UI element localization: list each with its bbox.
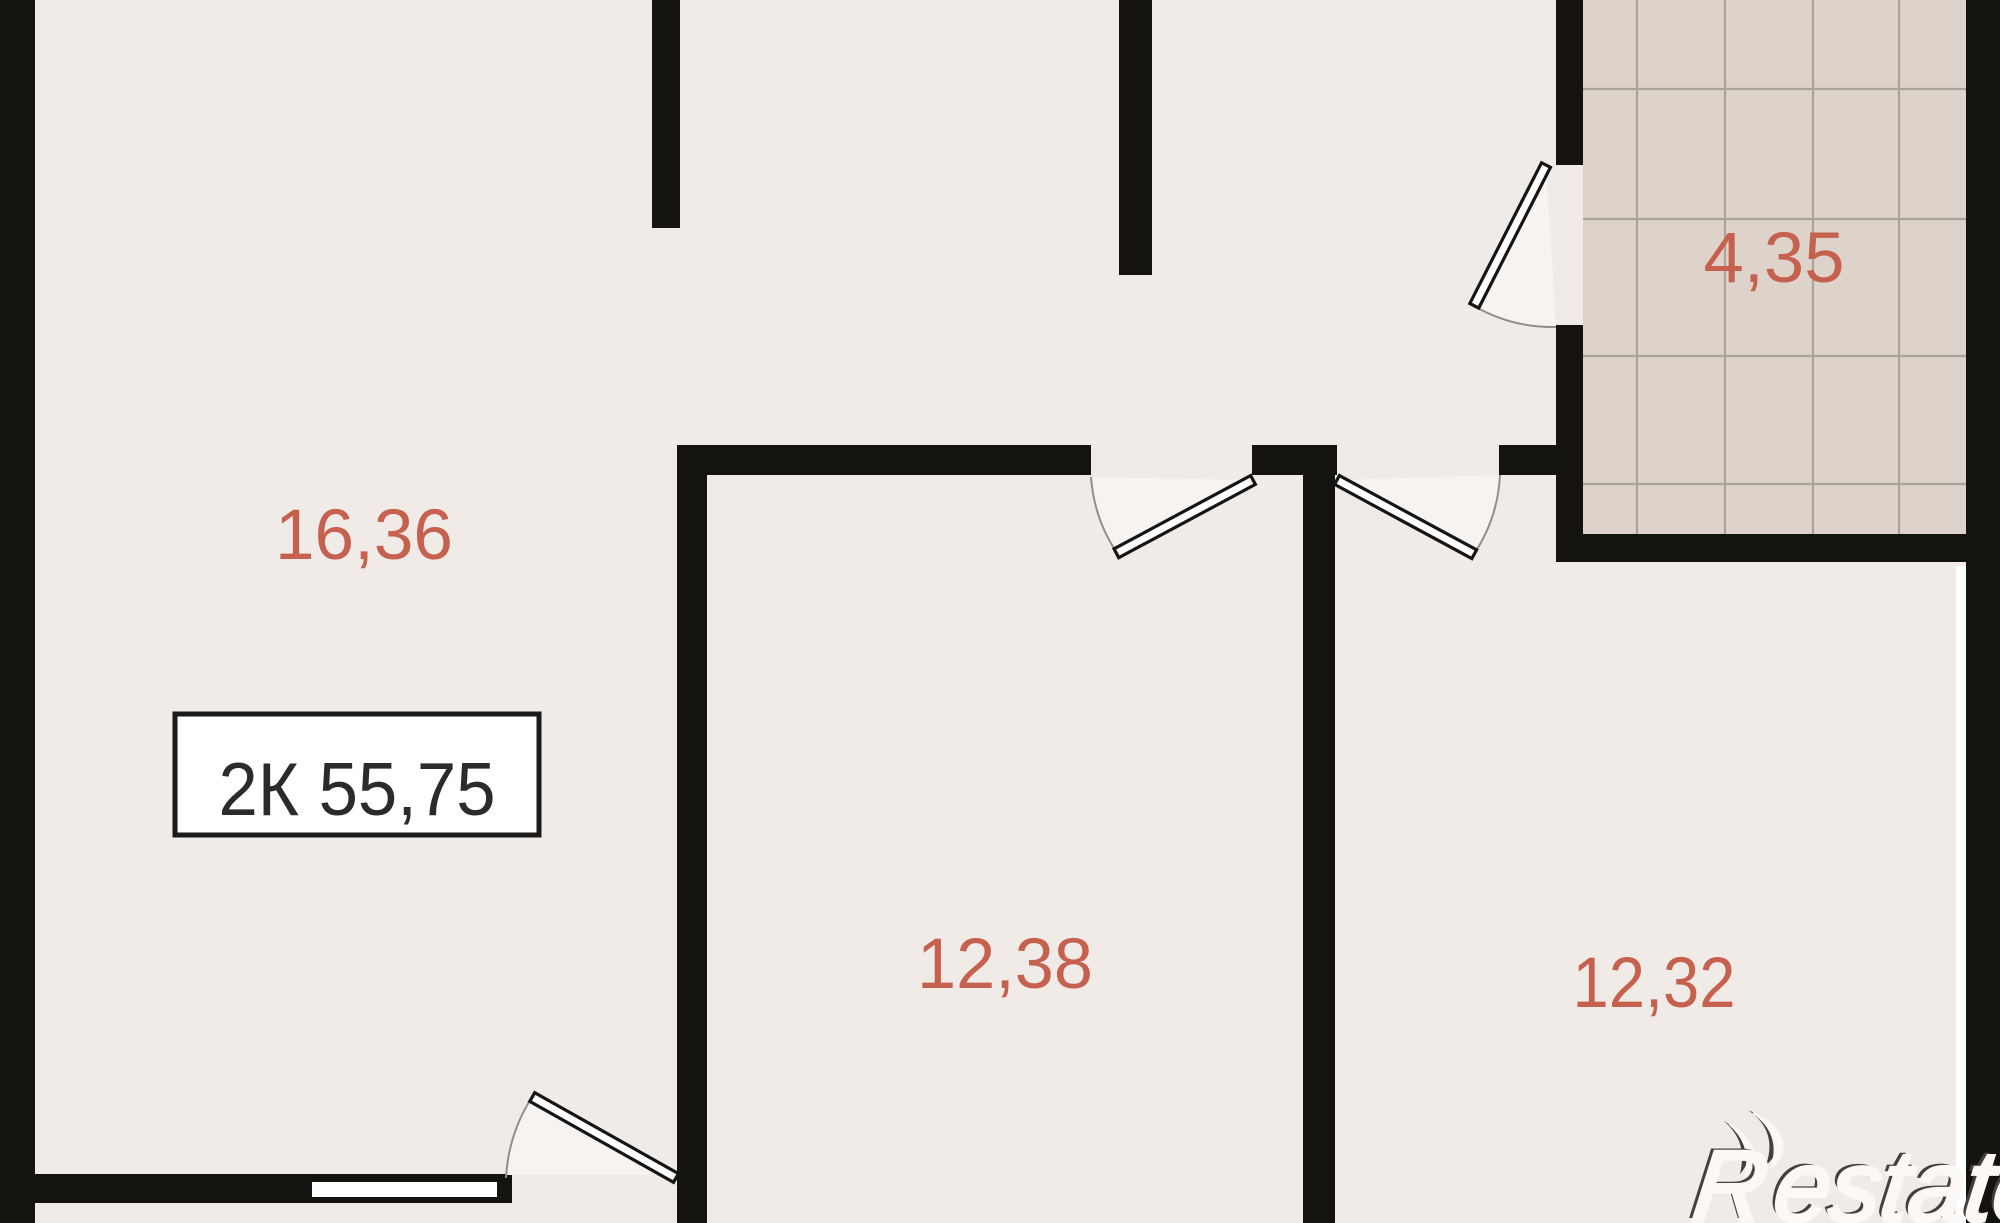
svg-text:2К 55,75: 2К 55,75: [219, 747, 496, 831]
svg-text:12,32: 12,32: [1573, 944, 1736, 1023]
svg-text:estate: estate: [1768, 1130, 2000, 1223]
svg-text:4,35: 4,35: [1704, 219, 1845, 298]
svg-text:12,38: 12,38: [917, 925, 1093, 1004]
svg-text:16,36: 16,36: [275, 496, 453, 575]
svg-text:R: R: [1687, 1130, 1774, 1223]
